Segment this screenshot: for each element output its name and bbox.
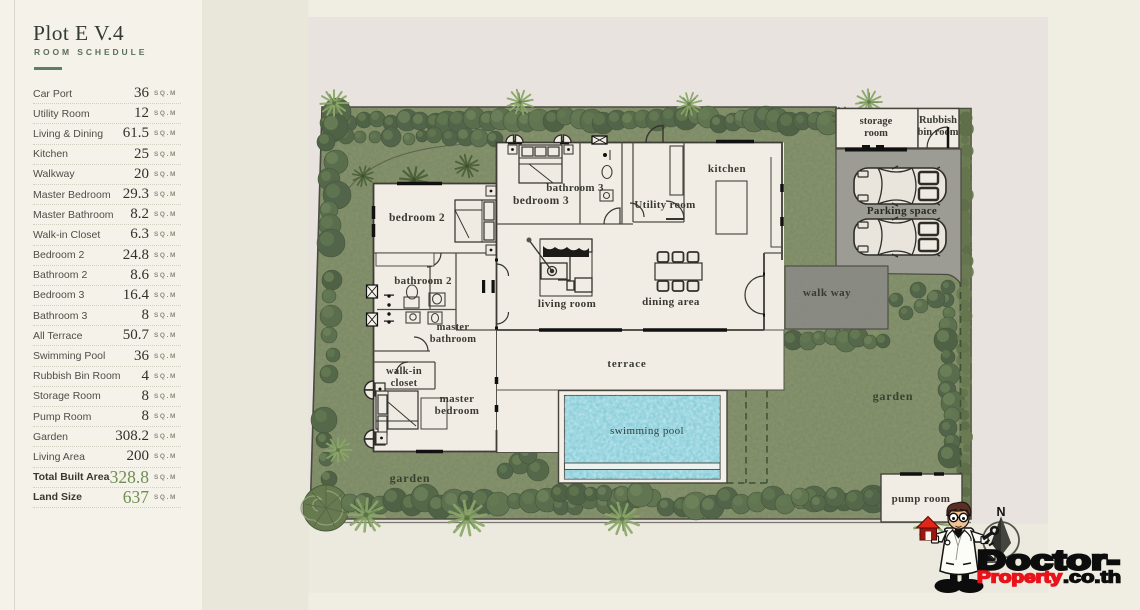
svg-text:living room: living room — [538, 298, 596, 310]
svg-text:terrace: terrace — [607, 358, 646, 370]
svg-text:bathroom 3: bathroom 3 — [546, 182, 604, 194]
svg-text:walk way: walk way — [803, 287, 851, 299]
svg-text:bedroom 3: bedroom 3 — [513, 195, 569, 207]
svg-text:bin room: bin room — [918, 127, 959, 138]
svg-text:master: master — [437, 322, 470, 333]
svg-text:N: N — [996, 505, 1005, 519]
svg-text:storage: storage — [860, 116, 893, 127]
svg-text:master: master — [440, 393, 475, 405]
svg-text:pump room: pump room — [892, 493, 951, 505]
svg-text:garden: garden — [873, 389, 914, 403]
svg-text:dining area: dining area — [642, 296, 700, 308]
svg-text:room: room — [864, 128, 888, 139]
svg-text:walk-in: walk-in — [386, 366, 422, 377]
svg-text:kitchen: kitchen — [708, 163, 746, 175]
svg-text:bedroom 2: bedroom 2 — [389, 212, 445, 224]
svg-text:bedroom: bedroom — [435, 405, 480, 417]
svg-text:swimming pool: swimming pool — [610, 425, 684, 437]
svg-text:Property: Property — [977, 569, 1063, 587]
svg-text:bathroom 2: bathroom 2 — [394, 275, 452, 287]
svg-text:Parking space: Parking space — [867, 205, 937, 217]
svg-text:bathroom: bathroom — [430, 334, 477, 345]
svg-text:Utility room: Utility room — [634, 199, 695, 211]
svg-text:.co.th: .co.th — [1063, 569, 1121, 587]
svg-text:Rubbish: Rubbish — [919, 115, 957, 126]
svg-text:garden: garden — [390, 471, 431, 485]
svg-text:closet: closet — [391, 378, 418, 389]
